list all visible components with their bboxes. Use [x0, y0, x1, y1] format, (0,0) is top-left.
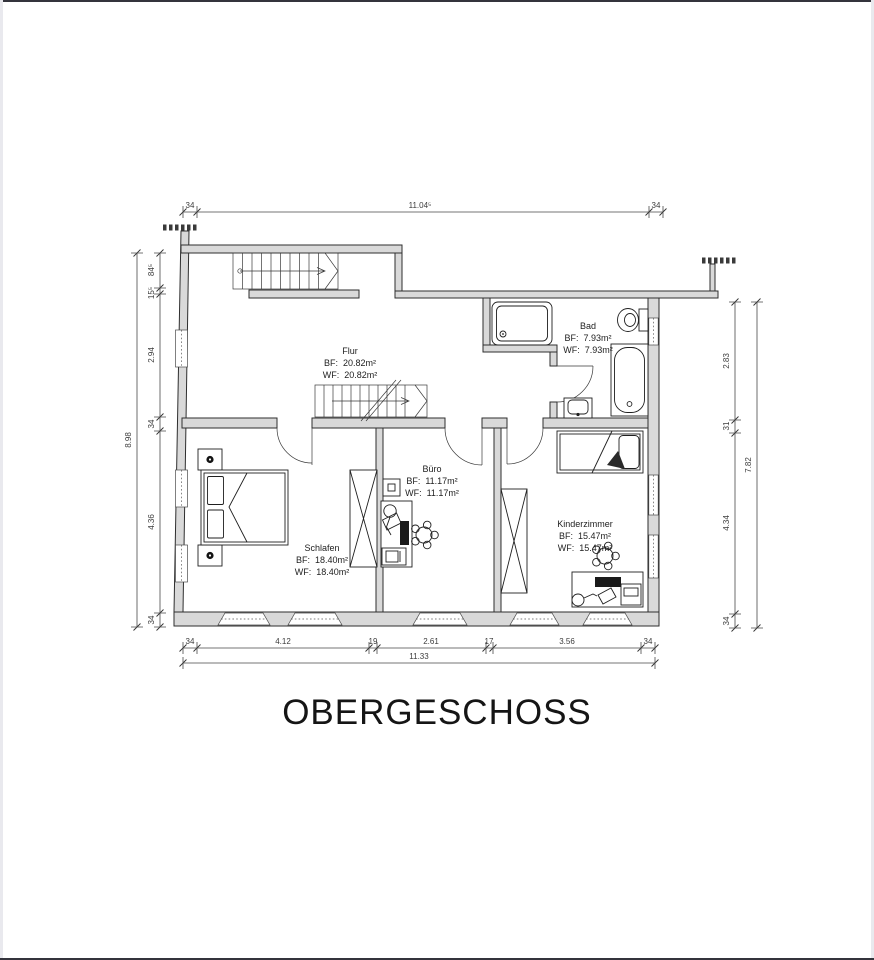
- dim-left-4: 4.36: [147, 514, 156, 530]
- nightstand-bottom: [198, 545, 222, 566]
- svg-text:Schlafen: Schlafen: [304, 543, 339, 553]
- toilet: [618, 309, 649, 332]
- monitor-kinderzimmer: [595, 577, 621, 587]
- wall-divider-d: [543, 418, 648, 428]
- svg-text:BF: 11.17m²: BF: 11.17m²: [406, 476, 457, 486]
- svg-text:Flur: Flur: [342, 346, 358, 356]
- bathtub: [611, 344, 648, 416]
- wall-bad-door-bottom: [550, 402, 557, 418]
- schlafen-furniture: [198, 449, 377, 567]
- svg-text:BF: 7.93m²: BF: 7.93m²: [564, 333, 611, 343]
- window-right-3: [649, 535, 658, 578]
- dim-left-total: 8.98: [124, 432, 133, 448]
- svg-text:WF: 18.40m²: WF: 18.40m²: [295, 567, 350, 577]
- svg-text:BF: 15.47m²: BF: 15.47m²: [559, 531, 611, 541]
- svg-text:WF: 20.82m²: WF: 20.82m²: [323, 370, 378, 380]
- stairs-upper-winder-chevron: [325, 253, 338, 289]
- door-kinderzimmer: [507, 428, 543, 464]
- dim-right-3: 34: [722, 616, 731, 625]
- dim-bottom-5: 3.56: [559, 637, 575, 646]
- wall-bad-door-top: [550, 352, 557, 366]
- wall-bad-shower-bottom: [483, 345, 557, 352]
- wall-top-step: [395, 253, 402, 291]
- dim-top-left: 34: [186, 201, 195, 210]
- wall-divider-a: [182, 418, 277, 428]
- stairs-middle: [315, 380, 427, 421]
- dim-left-3: 34: [147, 419, 156, 428]
- printer-buero: [382, 548, 406, 565]
- wardrobe-schlafen: [350, 470, 377, 567]
- stairs-middle-break-line: [361, 380, 401, 421]
- svg-text:Büro: Büro: [422, 464, 441, 474]
- dim-left-2: 2.94: [147, 347, 156, 363]
- door-schlafen: [277, 428, 312, 465]
- dim-bottom-4: 17: [485, 637, 494, 646]
- svg-text:WF: 11.17m²: WF: 11.17m²: [405, 488, 459, 498]
- dim-bottom-0: 34: [186, 637, 195, 646]
- desk-kinderzimmer: [572, 572, 643, 607]
- room-label-schlafen: Schlafen BF: 18.40m² WF: 18.40m²: [295, 543, 350, 577]
- room-label-bad: Bad BF: 7.93m² WF: 7.93m²: [563, 321, 613, 355]
- wall-buero-kinderzimmer: [494, 428, 501, 612]
- sink: [564, 398, 592, 418]
- svg-text:Kinderzimmer: Kinderzimmer: [557, 519, 613, 529]
- walls: [174, 231, 718, 626]
- dim-top-right: 34: [652, 201, 661, 210]
- wall-bad-shower-left: [483, 298, 490, 352]
- dim-left-5: 34: [147, 615, 156, 624]
- bathroom-fixtures: [492, 302, 648, 418]
- shower: [492, 302, 552, 345]
- plan-title: OBERGESCHOSS: [282, 693, 592, 732]
- double-bed: [201, 470, 288, 545]
- dim-right-total: 7.82: [744, 457, 753, 473]
- stairs-upper: [233, 253, 338, 289]
- dimension-lines: [131, 206, 763, 669]
- printer-kinderzimmer: [621, 584, 641, 605]
- door-bad: [557, 366, 593, 402]
- dim-bottom-total: 11.33: [409, 652, 429, 661]
- stair-landing-bar: [249, 290, 359, 298]
- stairs-middle-walkline: [332, 398, 409, 405]
- dim-bottom-1: 4.12: [275, 637, 291, 646]
- dim-top-middle: 11.04⁵: [409, 201, 432, 210]
- dim-left-1: 15⁵: [147, 287, 156, 299]
- wall-cabinet: [383, 479, 400, 496]
- child-bed: [557, 431, 643, 473]
- doors: [277, 366, 593, 465]
- nightstand-top: [198, 449, 222, 470]
- room-label-flur: Flur BF: 20.82m² WF: 20.82m²: [323, 346, 378, 380]
- dim-right-2: 4.34: [722, 515, 731, 531]
- stairs-middle-winder-chevron: [415, 385, 427, 417]
- wall-divider-c: [482, 418, 507, 428]
- door-buero: [445, 428, 482, 465]
- dim-bottom-6: 34: [644, 637, 653, 646]
- monitor: [400, 521, 409, 545]
- dim-right-1: 31: [722, 421, 731, 430]
- dim-bottom-2: 19: [369, 637, 378, 646]
- floor-plan-page: 34 11.04⁵ 34 34 4.12 19 2.61 17 3.56 34 …: [0, 0, 874, 960]
- svg-text:WF: 15.47m²: WF: 15.47m²: [558, 543, 613, 553]
- office-chair-buero: [412, 521, 439, 549]
- dim-bottom-3: 2.61: [423, 637, 439, 646]
- room-label-buero: Büro BF: 11.17m² WF: 11.17m²: [405, 464, 459, 498]
- svg-text:BF: 20.82m²: BF: 20.82m²: [324, 358, 376, 368]
- wall-top-stairs: [181, 245, 402, 253]
- dim-right-0: 2.83: [722, 353, 731, 369]
- wall-top-right: [395, 291, 718, 298]
- wall-divider-b: [312, 418, 445, 428]
- stairs-upper-walkline: [240, 268, 325, 275]
- dim-left-0: 84⁵: [147, 264, 156, 276]
- svg-text:BF: 18.40m²: BF: 18.40m²: [296, 555, 348, 565]
- wardrobe-kinderzimmer: [501, 489, 527, 593]
- wall-neighbour-stub: [710, 264, 715, 291]
- room-label-kinderzimmer: Kinderzimmer BF: 15.47m² WF: 15.47m²: [557, 519, 613, 553]
- floor-plan-drawing: 34 11.04⁵ 34 34 4.12 19 2.61 17 3.56 34 …: [0, 0, 874, 960]
- svg-text:Bad: Bad: [580, 321, 596, 331]
- svg-text:WF: 7.93m²: WF: 7.93m²: [563, 345, 613, 355]
